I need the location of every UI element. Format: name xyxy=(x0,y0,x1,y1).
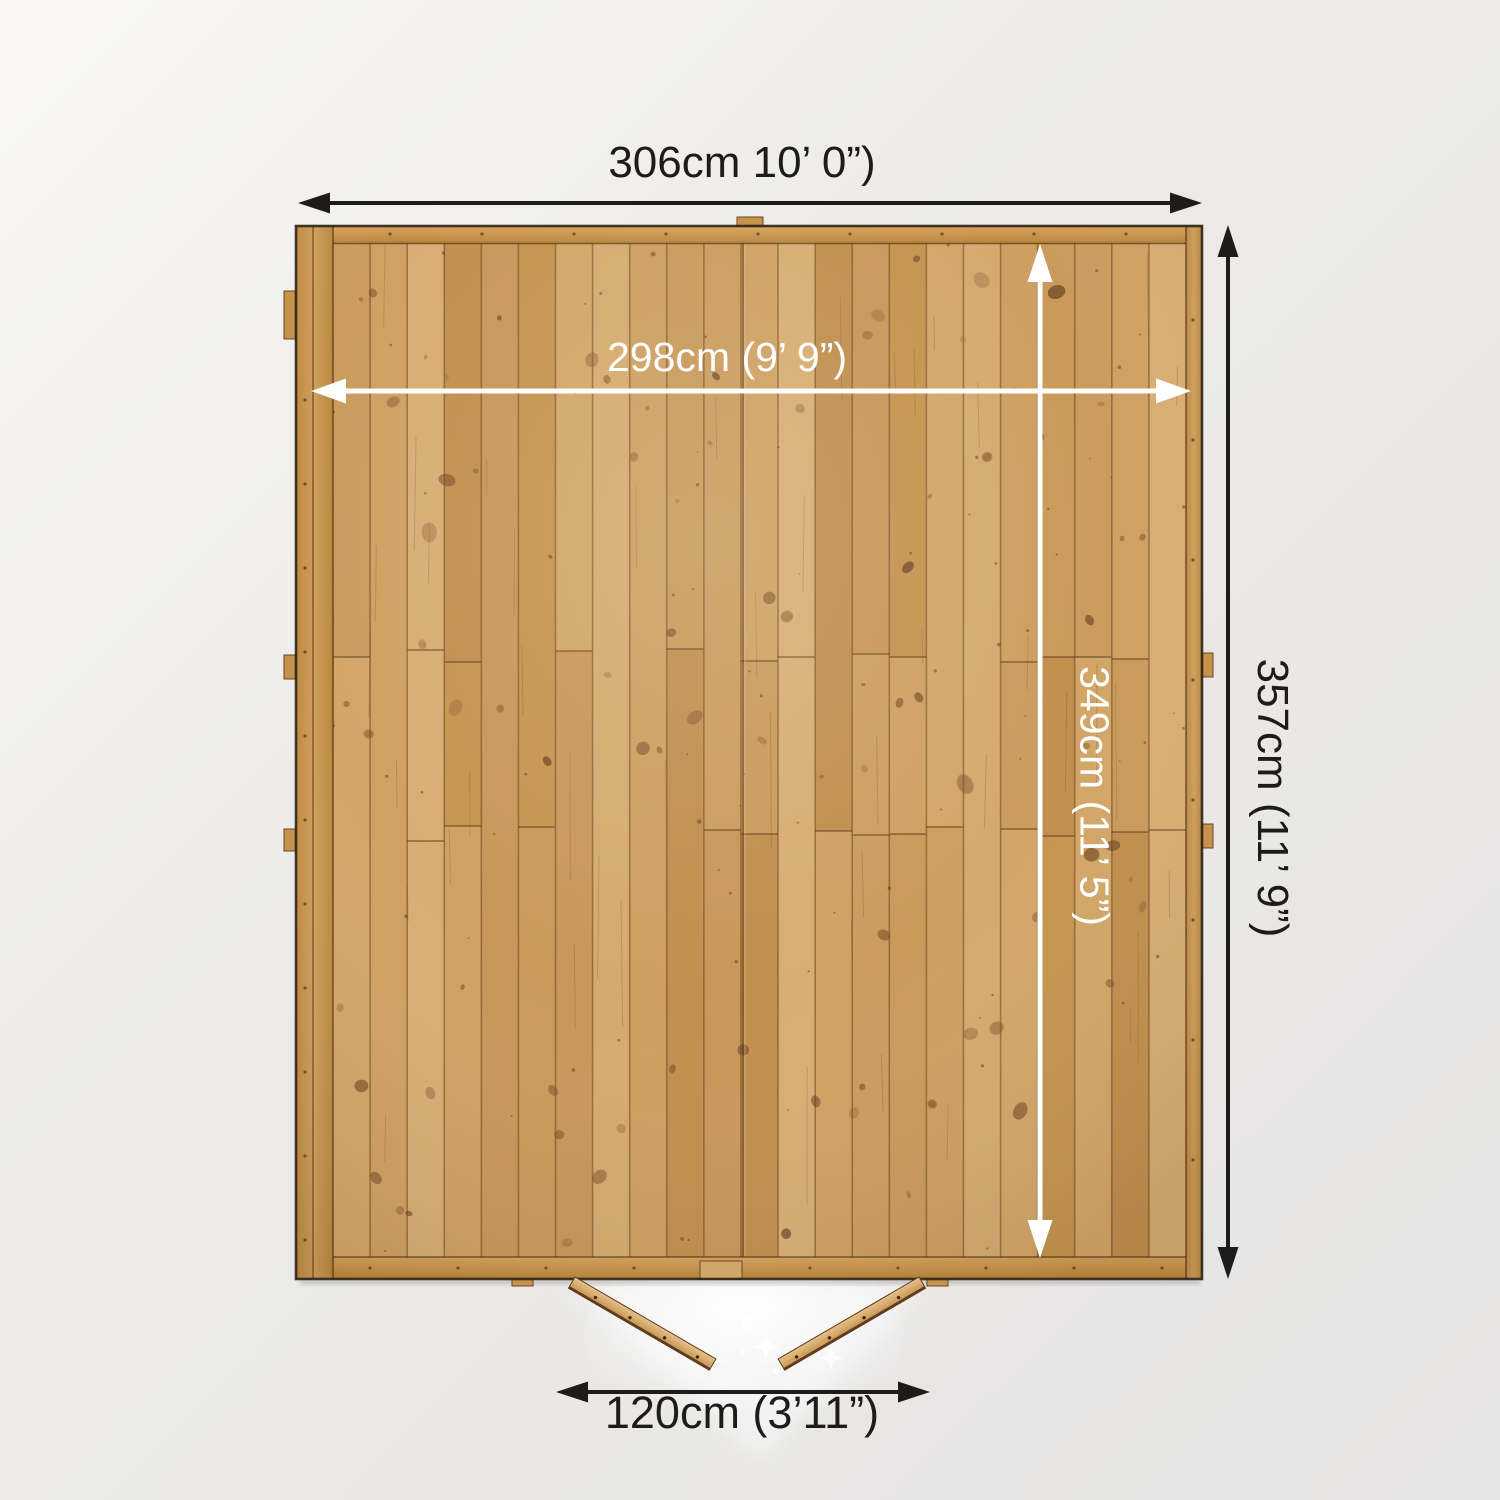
label-internal-depth: 349cm (11’ 5”) xyxy=(1074,666,1115,926)
label-internal-width: 298cm (9’ 9”) xyxy=(607,337,847,378)
label-external-depth: 357cm (11’ 9”) xyxy=(1250,659,1294,938)
label-door-width: 120cm (3’11”) xyxy=(605,1390,879,1435)
diagram-canvas: 306cm 10’ 0”) 298cm (9’ 9”) 349cm (11’ 5… xyxy=(0,0,1500,1500)
arrow-external-width xyxy=(298,193,1202,214)
arrow-external-depth xyxy=(1218,225,1239,1279)
label-external-width: 306cm 10’ 0”) xyxy=(608,141,875,185)
shed-shadow xyxy=(300,1280,1200,1284)
floor-lighting xyxy=(296,226,1202,1279)
